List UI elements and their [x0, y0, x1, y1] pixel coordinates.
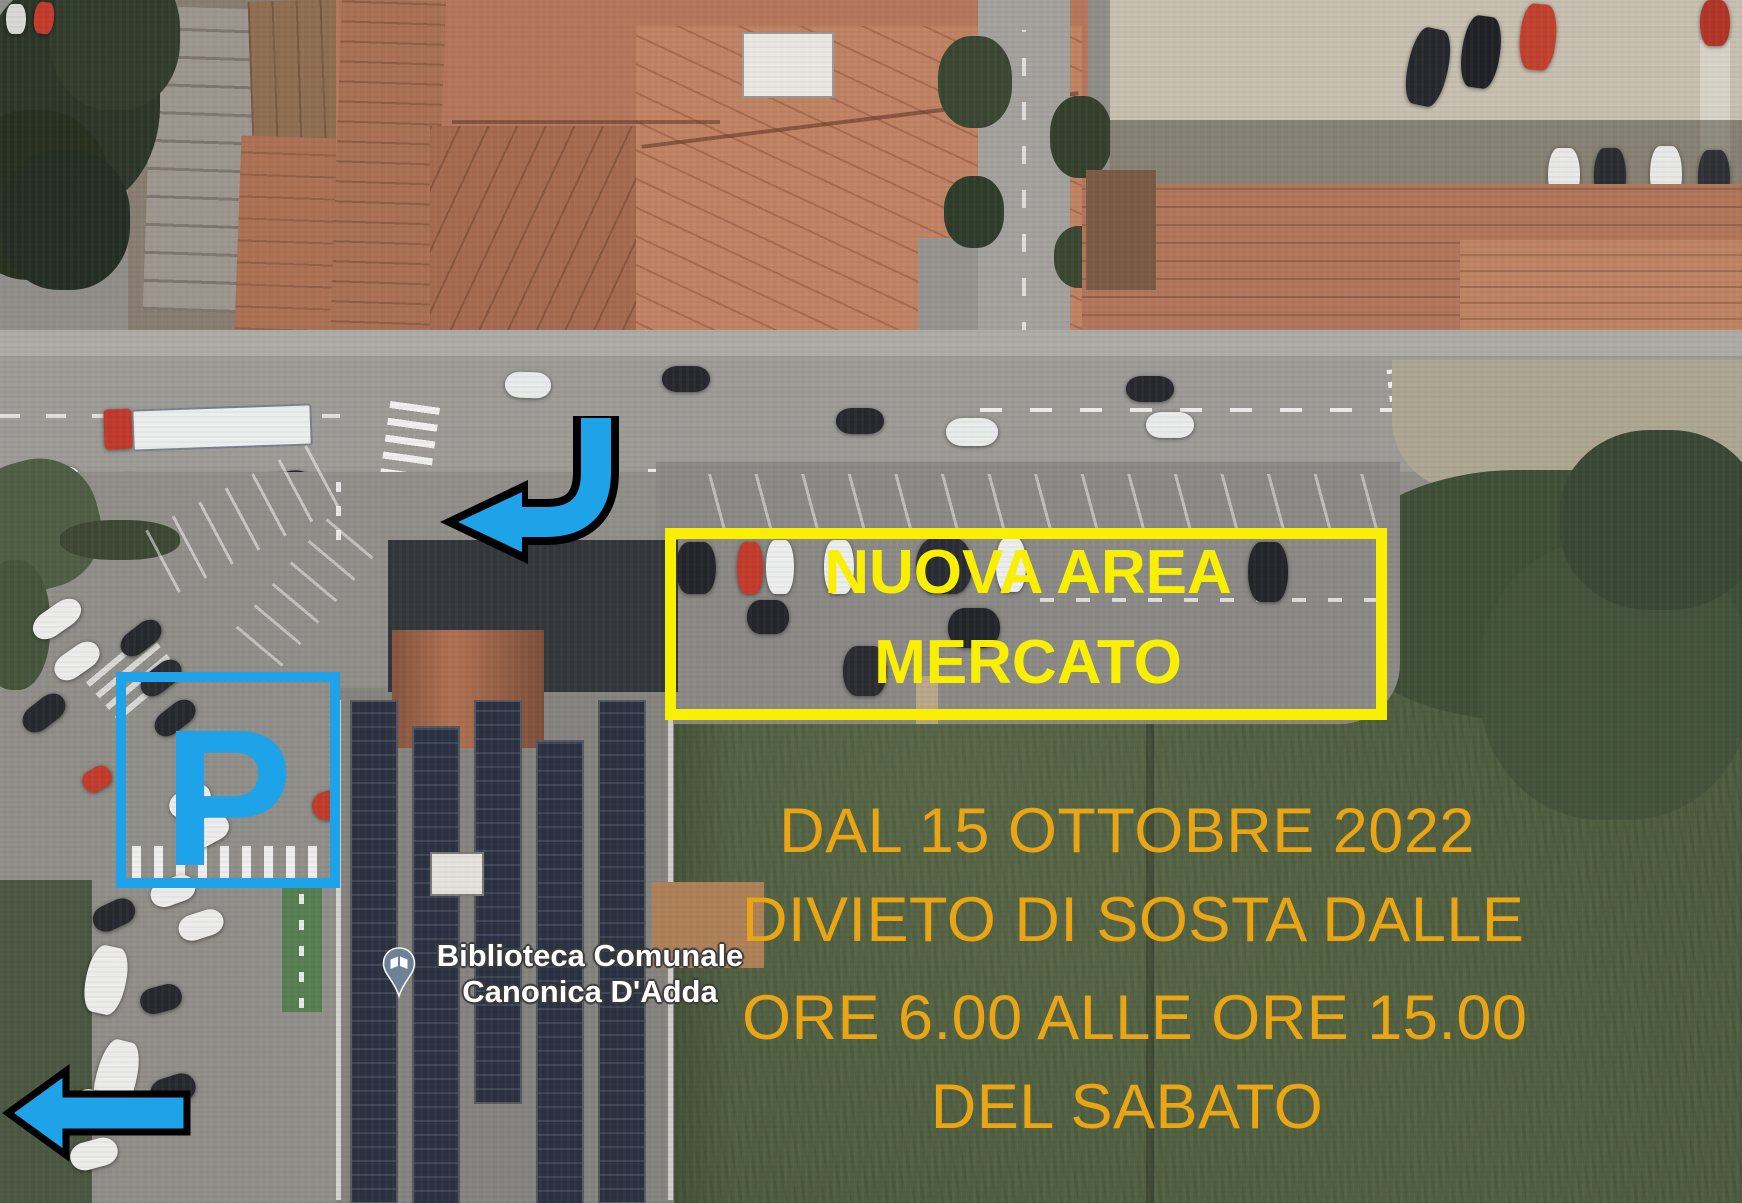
car [1700, 0, 1730, 46]
roof [1086, 170, 1156, 290]
sidewalk [0, 330, 1742, 356]
market-box-label-line1: NUOVA AREA [728, 540, 1328, 606]
roof [1460, 240, 1742, 336]
truck-cab [103, 409, 132, 450]
car [1146, 412, 1194, 438]
tree-canopy [1050, 96, 1112, 178]
left-arrow-icon [2, 1062, 194, 1164]
tree-canopy [938, 36, 1012, 128]
tree-canopy [944, 176, 1004, 248]
truck-trailer [131, 403, 312, 451]
solar-panel-array [474, 700, 522, 1104]
scrub-trees [1560, 430, 1742, 610]
truck [103, 400, 312, 451]
notice-line-2: DIVIETO DI SOSTA DALLE [742, 883, 1512, 957]
tree-canopy [0, 150, 130, 290]
car [6, 4, 26, 34]
roof [330, 0, 446, 346]
notice-line-1: DAL 15 OTTOBRE 2022 [742, 794, 1512, 868]
satellite-map: Biblioteca Comunale Canonica D'Adda NUOV… [0, 0, 1742, 1203]
car [946, 418, 998, 446]
car [836, 408, 884, 434]
notice-line-3: ORE 6.00 ALLE ORE 15.00 [742, 981, 1512, 1055]
notice-line-4: DEL SABATO [742, 1070, 1512, 1144]
poi-label-line1[interactable]: Biblioteca Comunale [400, 938, 780, 974]
roof-ridge [452, 120, 720, 124]
road-marking [1022, 30, 1026, 340]
curved-turn-left-arrow-icon [424, 406, 624, 581]
road-marking [336, 470, 341, 540]
parking-stall-lines [680, 474, 1380, 532]
poi-label-line2[interactable]: Canonica D'Adda [400, 974, 780, 1010]
market-box-label-line2: MERCATO [728, 630, 1328, 696]
car [1126, 376, 1174, 402]
skylight [430, 852, 484, 896]
car [505, 371, 552, 399]
parking-p-label: P [116, 682, 340, 888]
car [662, 366, 710, 392]
building-white [742, 32, 834, 98]
road-marking [299, 890, 304, 1008]
